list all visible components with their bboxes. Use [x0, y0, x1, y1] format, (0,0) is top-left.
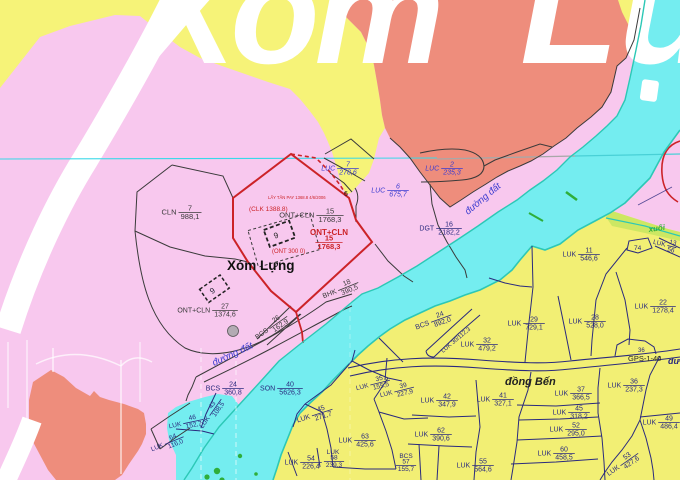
svg-text:237,3: 237,3	[625, 386, 643, 393]
svg-text:60: 60	[560, 447, 568, 454]
svg-text:37: 37	[577, 387, 585, 394]
svg-text:24: 24	[229, 382, 237, 389]
svg-text:675,7: 675,7	[389, 191, 408, 198]
svg-text:49: 49	[665, 416, 673, 423]
svg-text:22: 22	[659, 300, 667, 307]
svg-text:29: 29	[530, 317, 538, 324]
svg-text:16: 16	[445, 222, 453, 229]
svg-text:988,1: 988,1	[181, 212, 200, 221]
svg-text:LUC: LUC	[321, 165, 336, 172]
svg-text:LUK: LUK	[339, 437, 353, 444]
svg-text:63: 63	[361, 434, 369, 441]
svg-text:479,2: 479,2	[478, 345, 496, 352]
svg-text:278,6: 278,6	[338, 169, 357, 176]
svg-text:295,0: 295,0	[567, 430, 585, 437]
svg-text:LUC: LUC	[425, 165, 440, 172]
svg-text:41: 41	[499, 393, 507, 400]
svg-text:528,0: 528,0	[586, 322, 604, 329]
svg-text:ONT+CLN: ONT+CLN	[177, 307, 210, 314]
svg-text:74: 74	[634, 245, 642, 252]
svg-text:42: 42	[443, 394, 451, 401]
svg-text:1768,3: 1768,3	[319, 215, 342, 224]
svg-text:LUK: LUK	[461, 341, 475, 348]
svg-text:45: 45	[575, 406, 583, 413]
svg-text:LUK: LUK	[643, 419, 657, 426]
svg-text:đồng Bến: đồng Bến	[505, 376, 556, 388]
svg-text:LUK: LUK	[569, 318, 583, 325]
svg-text:LUK: LUK	[477, 396, 491, 403]
svg-text:BCS: BCS	[206, 385, 221, 392]
svg-text:GPS-1-40: GPS-1-40	[628, 354, 661, 363]
svg-text:Xóm: Xóm	[131, 0, 439, 94]
svg-text:SON: SON	[260, 385, 275, 392]
svg-text:LUC: LUC	[371, 187, 386, 194]
svg-text:2: 2	[449, 162, 454, 169]
svg-text:Xóm Lựng: Xóm Lựng	[227, 258, 295, 273]
svg-text:1768,3: 1768,3	[318, 242, 341, 251]
svg-text:LUK: LUK	[550, 426, 564, 433]
svg-text:360,8: 360,8	[224, 389, 242, 396]
svg-text:62: 62	[437, 428, 445, 435]
svg-text:28: 28	[591, 315, 599, 322]
svg-text:LUK: LUK	[538, 450, 552, 457]
svg-text:LUK: LUK	[555, 390, 569, 397]
svg-text:347,9: 347,9	[438, 401, 456, 408]
svg-text:27: 27	[221, 304, 229, 311]
svg-text:LUK: LUK	[285, 459, 299, 466]
svg-text:54: 54	[307, 456, 315, 463]
svg-text:58: 58	[330, 455, 338, 462]
svg-text:(ONT 300 0): (ONT 300 0)	[272, 249, 305, 255]
svg-text:LUK: LUK	[415, 431, 429, 438]
svg-text:1278,4: 1278,4	[652, 307, 674, 314]
svg-text:CLN: CLN	[161, 208, 176, 217]
svg-text:LUK: LUK	[508, 320, 522, 327]
svg-text:2182,2: 2182,2	[438, 229, 460, 236]
svg-text:11: 11	[585, 248, 592, 255]
svg-text:đư: đư	[668, 356, 680, 366]
svg-text:226,4: 226,4	[302, 463, 320, 470]
svg-text:366,5: 366,5	[572, 394, 590, 401]
svg-text:458,5: 458,5	[555, 454, 573, 461]
svg-text:6: 6	[396, 184, 400, 191]
svg-text:6: 6	[344, 191, 348, 198]
svg-text:32: 32	[483, 338, 491, 345]
svg-text:564,6: 564,6	[474, 466, 492, 473]
svg-text:235,3: 235,3	[442, 169, 461, 176]
svg-text:425,6: 425,6	[356, 441, 374, 448]
svg-text:5626,3: 5626,3	[279, 389, 301, 396]
svg-text:DGT: DGT	[419, 225, 435, 232]
svg-text:55: 55	[479, 459, 487, 466]
svg-text:1374,6: 1374,6	[214, 311, 236, 318]
svg-text:36: 36	[630, 379, 638, 386]
svg-text:LUK: LUK	[421, 397, 435, 404]
svg-text:327,1: 327,1	[494, 400, 512, 407]
svg-text:LUK: LUK	[457, 462, 471, 469]
svg-text:239,3: 239,3	[326, 462, 343, 469]
svg-text:318,2: 318,2	[570, 413, 588, 420]
svg-text:LUK: LUK	[563, 251, 577, 258]
svg-text:LUK: LUK	[635, 303, 649, 310]
svg-text:57: 57	[402, 459, 410, 466]
svg-text:52: 52	[572, 423, 580, 430]
svg-text:390,6: 390,6	[432, 435, 450, 442]
svg-text:LẤY TẮN PAY 1368.8 4/6/2006: LẤY TẮN PAY 1368.8 4/6/2006	[268, 195, 326, 200]
svg-text:546,6: 546,6	[580, 255, 598, 262]
svg-text:40: 40	[286, 382, 294, 389]
svg-text:(CLK 1388.8): (CLK 1388.8)	[249, 206, 288, 213]
svg-text:LUK: LUK	[608, 382, 622, 389]
svg-text:155,7: 155,7	[398, 466, 415, 473]
svg-text:LUK: LUK	[553, 409, 567, 416]
svg-text:486,4: 486,4	[660, 423, 678, 430]
svg-text:729,1: 729,1	[525, 324, 543, 331]
